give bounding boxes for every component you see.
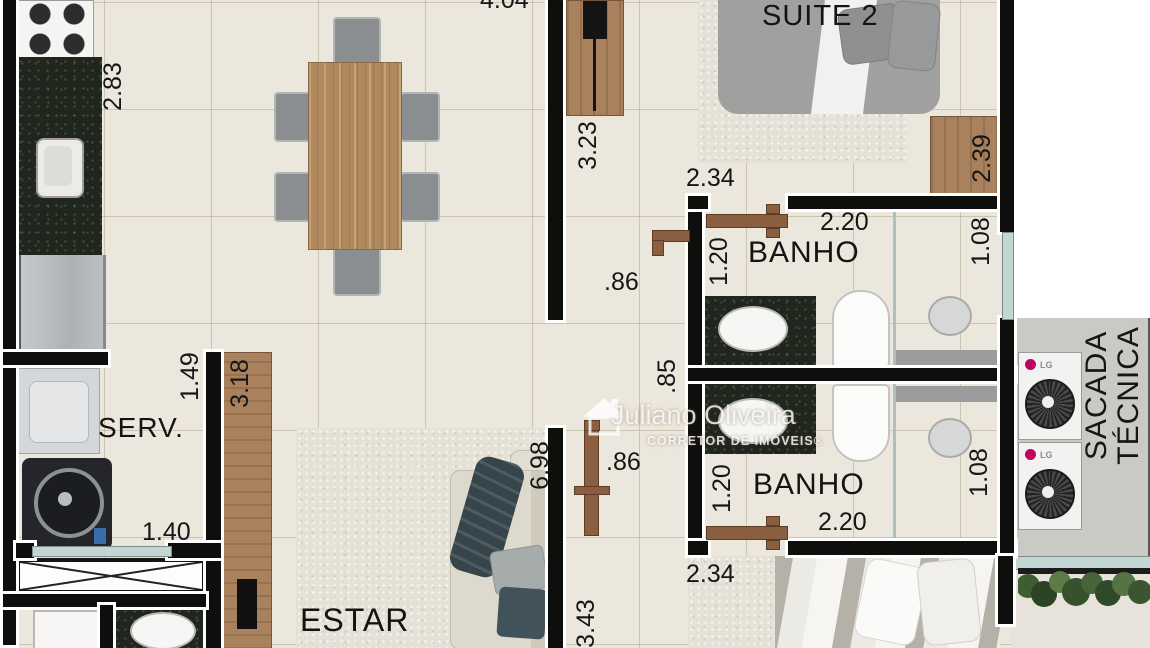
floor-plan: LG LG <box>0 0 1150 648</box>
room-label-banho-bottom: BANHO <box>753 468 865 502</box>
wardrobe-hangers <box>583 1 607 39</box>
suite2-window-glass <box>1002 232 1014 320</box>
laundry-tank-basin <box>29 381 89 443</box>
sofa-pillow-dark <box>496 586 547 639</box>
lg-logo-icon <box>1025 449 1036 460</box>
sacada-line1: SACADA <box>1080 330 1113 459</box>
wall-suite2-right <box>1000 0 1014 232</box>
wall-right-mid <box>1000 318 1014 556</box>
dining-chair-top <box>333 17 381 67</box>
dim-living-width: 3.43 <box>572 596 600 648</box>
cooktop <box>18 0 94 59</box>
dim-door-top: .86 <box>604 268 639 297</box>
wall-right-low-stub <box>998 556 1013 624</box>
dim-kitchen-depth: 2.83 <box>98 58 128 114</box>
wall-banho-bottom-b <box>788 541 1015 555</box>
banho-bottom-door <box>706 526 788 540</box>
tv <box>237 579 257 629</box>
room-label-estar: ESTAR <box>300 602 409 639</box>
suite2-door-jamb <box>652 240 664 256</box>
dining-chair-bottom <box>333 247 381 296</box>
refrigerator <box>18 255 106 352</box>
suite1-bed <box>775 556 1000 648</box>
wall-serv-right <box>206 352 221 648</box>
corridor-door-jamb <box>584 420 600 431</box>
dim-serv-depth: 1.49 <box>176 346 204 406</box>
dining-table <box>308 62 402 250</box>
dim-dresser-len: 2.39 <box>966 126 998 190</box>
banho-top-door-handle <box>766 204 780 214</box>
banho-bottom-toilet <box>832 384 890 462</box>
dim-banho-bottom-right: 1.08 <box>962 442 996 502</box>
washer-hub <box>58 492 72 506</box>
dim-serv-width: 1.40 <box>142 518 191 547</box>
banho-top-toilet <box>832 290 890 368</box>
suite2-wardrobe <box>566 0 624 116</box>
room-label-suite2: SUITE 2 <box>762 0 879 33</box>
banho-bottom-door-handle <box>766 540 780 550</box>
balcony <box>1011 556 1150 648</box>
small-bath-sink <box>130 612 196 648</box>
wall-small-bath-divider <box>100 605 113 648</box>
suite1-pillow-2 <box>916 557 982 647</box>
dim-top-width: 4.04 <box>480 0 529 15</box>
room-label-serv: SERV. <box>98 412 184 444</box>
balcony-plants <box>1018 568 1150 614</box>
banho-bottom-sink <box>718 398 788 444</box>
lg-logo-icon <box>1025 359 1036 370</box>
wall-banho-bottom-a <box>688 541 708 555</box>
banho-bottom-door-handle <box>766 516 780 526</box>
room-label-sacada: SACADA TÉCNICA <box>1038 320 1150 470</box>
kitchen-sink <box>36 138 84 198</box>
dim-suite2-width: 2.34 <box>686 164 735 193</box>
banho-bottom-shower-floor <box>896 386 1000 402</box>
washer-label <box>94 528 106 544</box>
ac-fan-hub <box>1042 486 1054 498</box>
washing-machine <box>22 458 112 550</box>
wall-banho-divider <box>688 368 1015 381</box>
small-bath-door <box>33 610 107 648</box>
banho-top-shower-partition <box>893 209 896 367</box>
corridor-door-handle <box>574 486 610 495</box>
kitchen-sink-basin <box>44 146 72 186</box>
banho-bottom-shower-partition <box>893 382 896 540</box>
dim-closet-len: 3.23 <box>574 116 602 174</box>
wall-dining-corridor <box>548 0 563 320</box>
banho-top-shower-floor <box>896 350 1000 366</box>
dining-chair-right-2 <box>400 172 440 222</box>
banho-top-shower-head <box>928 296 972 336</box>
bed-pillow-2 <box>887 0 942 72</box>
duct-shaft <box>16 558 206 594</box>
sacada-line2: TÉCNICA <box>1112 326 1145 465</box>
dim-banho-top-left: 1.20 <box>704 232 734 290</box>
shaft-x-icon <box>20 562 202 590</box>
dim-living-len: 6.98 <box>524 434 556 496</box>
dining-chair-right-1 <box>400 92 440 142</box>
banho-top-sink <box>718 306 788 352</box>
dim-suite1-width: 2.34 <box>686 560 735 589</box>
wall-left-outer <box>3 0 16 645</box>
banho-top-door <box>706 214 788 228</box>
serv-window-glass <box>32 546 172 557</box>
dim-banho-top-width: 2.20 <box>820 208 869 237</box>
wall-kitchen-serv <box>3 352 108 365</box>
wall-banho-top-a <box>688 196 708 209</box>
room-label-banho-top: BANHO <box>748 236 860 270</box>
dim-door-bottom: .86 <box>606 448 641 477</box>
dim-hall-mid: .85 <box>650 352 684 400</box>
outside-area <box>1014 0 1150 318</box>
dim-banho-top-right: 1.08 <box>964 210 998 272</box>
corridor-door <box>584 430 599 536</box>
laundry-tank <box>18 368 100 454</box>
dim-banho-bottom-width: 2.20 <box>818 508 867 537</box>
dim-rack-len: 3.18 <box>226 354 254 412</box>
dim-banho-bottom-left: 1.20 <box>706 460 738 516</box>
